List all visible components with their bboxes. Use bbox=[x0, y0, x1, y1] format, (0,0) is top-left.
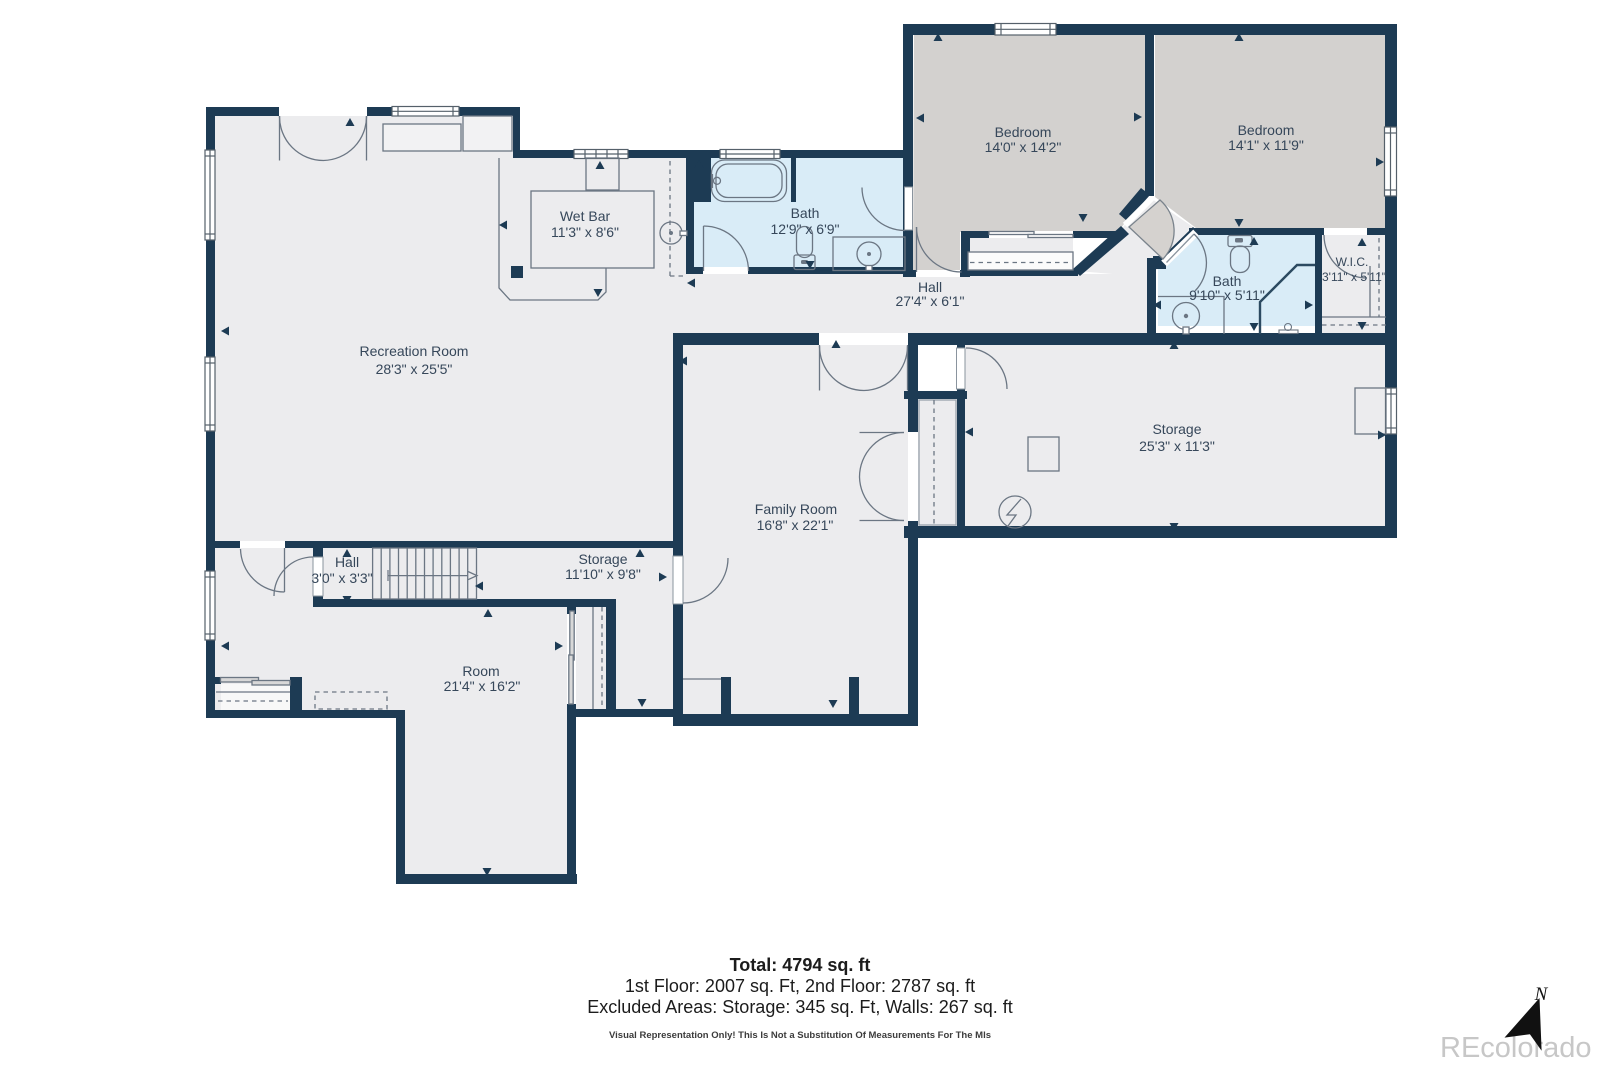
svg-text:3'0" x 3'3": 3'0" x 3'3" bbox=[311, 570, 372, 586]
svg-text:14'0" x 14'2": 14'0" x 14'2" bbox=[985, 139, 1062, 155]
svg-text:28'3" x 25'5": 28'3" x 25'5" bbox=[376, 361, 453, 377]
svg-text:Bedroom: Bedroom bbox=[1238, 122, 1295, 138]
svg-text:Family Room: Family Room bbox=[755, 501, 837, 517]
svg-text:W.I.C.: W.I.C. bbox=[1336, 255, 1369, 269]
svg-text:Visual Representation Only! Th: Visual Representation Only! This Is Not … bbox=[609, 1030, 991, 1041]
svg-text:Bath: Bath bbox=[791, 205, 820, 221]
svg-text:1st Floor: 2007 sq. Ft, 2nd Fl: 1st Floor: 2007 sq. Ft, 2nd Floor: 2787 … bbox=[625, 976, 975, 996]
svg-text:Hall: Hall bbox=[335, 554, 359, 570]
svg-text:REcolorado: REcolorado bbox=[1440, 1032, 1592, 1064]
svg-text:Room: Room bbox=[462, 663, 499, 679]
svg-text:11'3" x 8'6": 11'3" x 8'6" bbox=[551, 224, 619, 240]
svg-text:21'4" x 16'2": 21'4" x 16'2" bbox=[444, 678, 521, 694]
svg-text:25'3" x 11'3": 25'3" x 11'3" bbox=[1139, 438, 1215, 454]
svg-text:12'9" x 6'9": 12'9" x 6'9" bbox=[771, 221, 840, 237]
svg-text:Recreation Room: Recreation Room bbox=[360, 343, 469, 359]
svg-text:Total: 4794 sq. ft: Total: 4794 sq. ft bbox=[730, 955, 871, 975]
svg-text:Wet Bar: Wet Bar bbox=[560, 208, 611, 224]
svg-text:Storage: Storage bbox=[578, 551, 627, 567]
svg-text:27'4" x 6'1": 27'4" x 6'1" bbox=[896, 293, 965, 309]
svg-text:N: N bbox=[1534, 984, 1549, 1005]
svg-text:11'10" x 9'8": 11'10" x 9'8" bbox=[565, 566, 641, 582]
svg-text:Storage: Storage bbox=[1152, 421, 1201, 437]
svg-text:16'8" x 22'1": 16'8" x 22'1" bbox=[757, 517, 834, 533]
svg-text:14'1" x 11'9": 14'1" x 11'9" bbox=[1228, 137, 1304, 153]
svg-text:Excluded Areas: Storage: 345 s: Excluded Areas: Storage: 345 sq. Ft, Wal… bbox=[587, 997, 1013, 1017]
svg-text:3'11" x 5'11": 3'11" x 5'11" bbox=[1322, 270, 1386, 284]
svg-text:Bedroom: Bedroom bbox=[995, 124, 1052, 140]
svg-text:9'10" x 5'11": 9'10" x 5'11" bbox=[1189, 287, 1265, 303]
